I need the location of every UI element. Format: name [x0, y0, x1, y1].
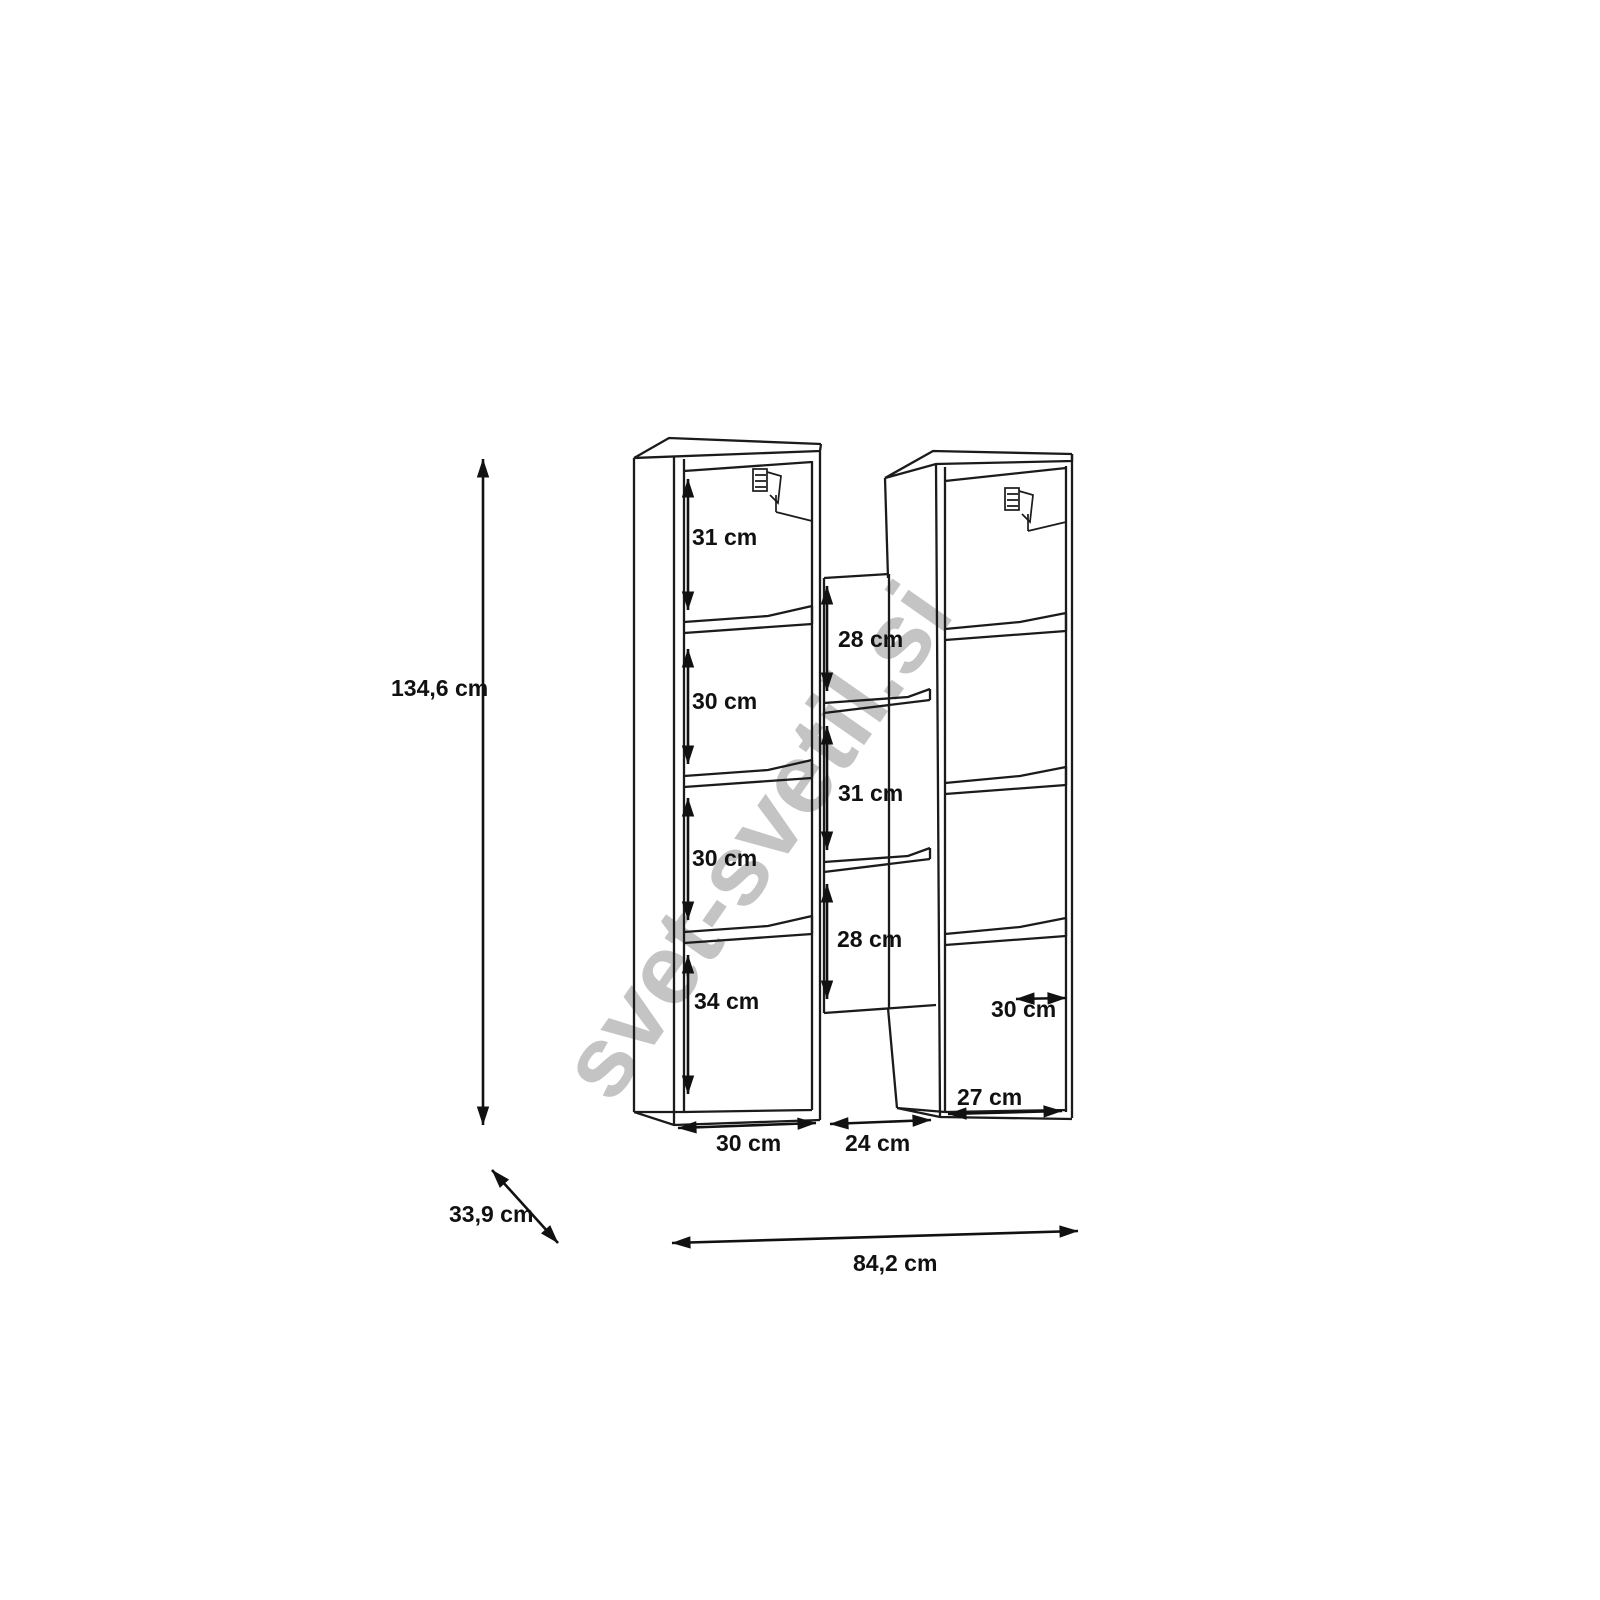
dimension-arrow-mid-width [830, 1120, 931, 1124]
wall-mount-bracket-icon [753, 469, 812, 521]
dimension-label-mid-c3: 28 cm [837, 926, 902, 952]
shelf-divider [945, 918, 1066, 945]
middle-shelf [824, 848, 930, 872]
dimension-label-right-bottom-width: 27 cm [957, 1084, 1022, 1110]
left-cabinet-top-panel [634, 438, 821, 458]
dimension-diagram: svet-svetil.si [0, 0, 1600, 1600]
dimension-label-left-c4: 34 cm [694, 988, 759, 1014]
dimension-label-mid-c1: 28 cm [838, 626, 903, 652]
dimension-label-mid-c2: 31 cm [838, 780, 903, 806]
dimension-label-right-shelf-width: 30 cm [991, 996, 1056, 1022]
dimension-label-left-width: 30 cm [716, 1130, 781, 1156]
dimension-label-total-width: 84,2 cm [853, 1250, 937, 1276]
dimension-label-depth: 33,9 cm [449, 1201, 533, 1227]
shelf-divider [684, 606, 812, 633]
dimension-label-left-c3: 30 cm [692, 845, 757, 871]
wall-mount-bracket-icon [1005, 488, 1066, 531]
dimension-label-mid-width: 24 cm [845, 1130, 910, 1156]
dimension-label-left-c2: 30 cm [692, 688, 757, 714]
shelf-divider [945, 767, 1066, 794]
right-cabinet-top-panel [885, 451, 1072, 478]
dimension-label-total-height: 134,6 cm [391, 675, 488, 701]
watermark: svet-svetil.si [538, 563, 974, 1119]
dimension-arrow-total-width [672, 1231, 1078, 1243]
dimension-label-left-c1: 31 cm [692, 524, 757, 550]
